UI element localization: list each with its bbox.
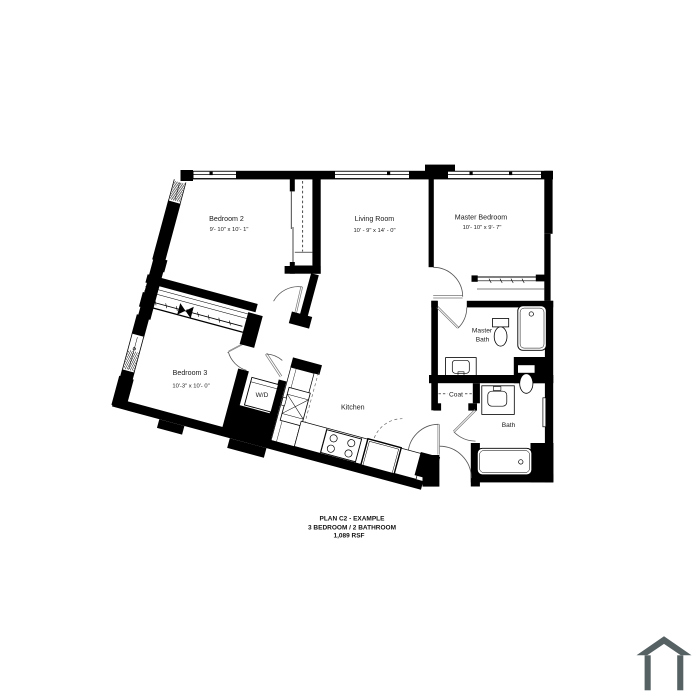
svg-text:Kitchen: Kitchen [341,403,365,411]
svg-text:10'- 10" x 9'- 7": 10'- 10" x 9'- 7" [463,225,502,231]
svg-text:Bedroom 3: Bedroom 3 [173,369,208,377]
svg-text:Coat: Coat [449,391,463,398]
svg-text:9'- 10" x 10'- 1": 9'- 10" x 10'- 1" [210,227,249,233]
svg-text:Bath: Bath [502,422,516,429]
svg-text:10' - 9" x 14' - 0": 10' - 9" x 14' - 0" [353,228,395,234]
svg-text:PLAN C2 - EXAMPLE: PLAN C2 - EXAMPLE [319,516,385,523]
svg-text:10'-3" x 10'- 0": 10'-3" x 10'- 0" [172,384,209,390]
svg-text:1,089 RSF: 1,089 RSF [333,533,364,540]
svg-text:Bath: Bath [476,336,490,343]
svg-text:3 BEDROOM / 2 BATHROOM: 3 BEDROOM / 2 BATHROOM [308,525,396,532]
svg-text:Living Room: Living Room [355,215,395,223]
svg-text:W/D: W/D [256,392,269,399]
svg-text:Master Bedroom: Master Bedroom [455,213,508,221]
svg-text:Bedroom 2: Bedroom 2 [209,215,244,223]
svg-text:Master: Master [472,327,493,334]
